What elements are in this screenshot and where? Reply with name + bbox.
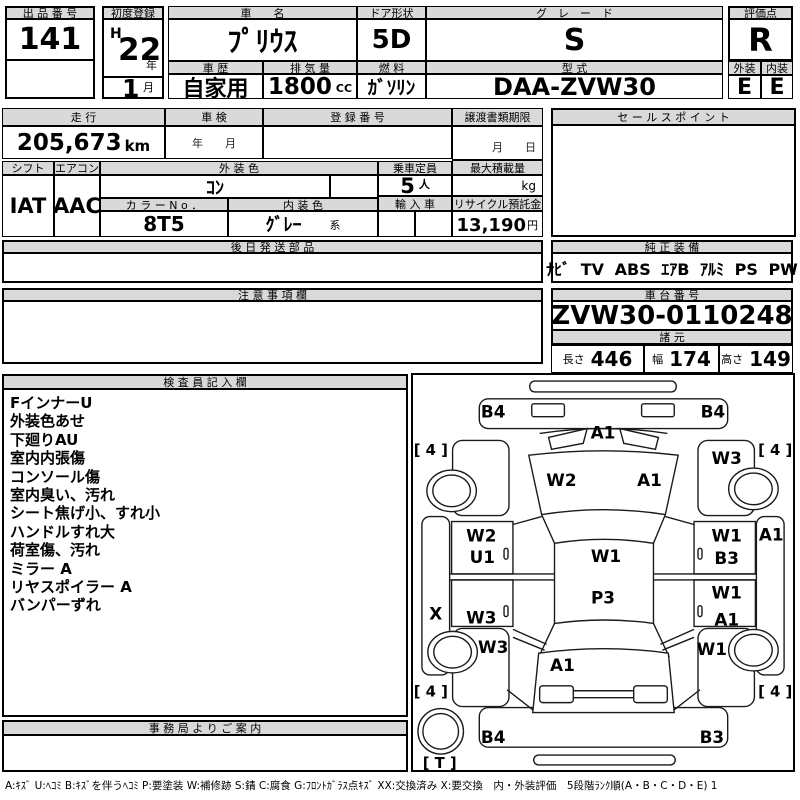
wheel-front-right-inner xyxy=(735,473,773,505)
damage-label-front-bumper-left: B4 xyxy=(481,402,506,422)
length-value: 446 xyxy=(591,347,633,371)
fuel-value: ｶﾞｿﾘﾝ xyxy=(357,74,426,99)
interior-color-suffix: 系 xyxy=(330,217,341,236)
door-handle-rr xyxy=(698,606,702,617)
damage-label-quarter-rl: W3 xyxy=(478,637,508,657)
damage-diagram: B4 B4 A1 [ 4 ] [ 4 ] W3 W2 A1 W2 U1 W1 W… xyxy=(411,373,795,772)
front-quarter-lines xyxy=(513,517,694,525)
lot-number-value: 141 xyxy=(5,18,95,61)
notes-body xyxy=(2,300,543,364)
aircon-value: AAC xyxy=(54,175,100,237)
spare-tire-label: [ T ] xyxy=(423,755,457,770)
rear-bumper-strip xyxy=(534,755,676,765)
grade-header: グ レ ー ド xyxy=(426,6,723,19)
interior-color-value: ｸﾞﾚｰ xyxy=(266,211,302,237)
wheel-front-left-inner xyxy=(433,475,471,507)
door-handle-rl xyxy=(504,606,508,617)
car-damage-map: B4 B4 A1 [ 4 ] [ 4 ] W3 W2 A1 W2 U1 W1 W… xyxy=(413,375,793,770)
damage-labels: B4 B4 A1 [ 4 ] [ 4 ] W3 W2 A1 W2 U1 W1 W… xyxy=(414,402,793,770)
height-label: 高さ xyxy=(721,351,743,367)
transfer-docs-hint: 月 日 xyxy=(452,126,543,160)
car-name-header: 車 名 xyxy=(168,6,357,19)
damage-label-fender-fr: W3 xyxy=(712,448,742,468)
displacement-value-cell: 1800 CC xyxy=(263,74,357,99)
height-value: 149 xyxy=(749,347,791,371)
recycle-deposit-value: 13,190 xyxy=(457,215,526,236)
month-suffix: 月 xyxy=(143,79,154,95)
damage-label-windshield-left: W2 xyxy=(546,470,576,490)
exterior-color-value: ｺﾝ xyxy=(100,175,330,198)
wheel-rear-left-inner xyxy=(434,636,472,668)
color-no-header: カ ラ ー N o ． xyxy=(100,198,228,211)
interior-color-header: 内 装 色 xyxy=(228,198,378,211)
capacity-value: 5 xyxy=(400,174,415,198)
displacement-header: 排 気 量 xyxy=(263,61,357,74)
tread-depth-rear-left: [ 4 ] xyxy=(414,684,448,701)
recycle-deposit-unit: 円 xyxy=(527,217,538,233)
interior-score-value: E xyxy=(761,75,793,99)
exterior-color-header: 外 装 色 xyxy=(100,161,378,175)
oem-equipment-value: ﾅﾋﾞ TV ABS ｴｱB ｱﾙﾐ PS PW xyxy=(551,252,793,283)
door-handle-fr xyxy=(698,548,702,559)
max-load-value-cell: kg xyxy=(452,175,543,196)
width-label: 幅 xyxy=(652,351,663,367)
damage-label-door-rr-1: W1 xyxy=(712,583,742,603)
registration-no-value xyxy=(263,126,452,159)
damage-code-legend: A:ｷｽﾞ U:ﾍｺﾐ B:ｷｽﾞを伴うﾍｺﾐ P:要塗装 W:補修跡 S:錆 … xyxy=(5,778,797,796)
damage-label-door-rl: W3 xyxy=(466,607,496,627)
interior-score-header: 内装 xyxy=(761,61,793,75)
mileage-value: 205,673 xyxy=(17,130,122,156)
import-car-cell-left xyxy=(378,211,415,237)
damage-label-door-fl-2: U1 xyxy=(470,547,495,567)
dimension-width-cell: 幅 174 xyxy=(644,345,719,373)
inspection-hint: 年 月 xyxy=(165,126,263,159)
inspector-note-item: FインナーU xyxy=(10,394,406,412)
damage-label-sill-right: A1 xyxy=(759,524,784,544)
grade-value: S xyxy=(426,19,723,61)
year-suffix: 年 xyxy=(146,57,157,73)
score-value: R xyxy=(728,18,793,61)
inspector-note-item: シート焦げ小、すれ小 xyxy=(10,504,406,522)
office-info-body xyxy=(2,734,408,772)
car-name-value: ﾌﾟﾘｳｽ xyxy=(168,19,357,61)
model-code-value: DAA-ZVW30 xyxy=(426,74,723,99)
door-shape-header: ドア形状 xyxy=(357,6,426,19)
color-no-value: 8T5 xyxy=(100,211,228,237)
capacity-unit: 人 xyxy=(419,176,430,195)
headlight-right xyxy=(642,404,675,417)
width-value: 174 xyxy=(669,347,711,371)
damage-label-quarter-rr: W1 xyxy=(697,639,727,659)
inspector-note-item: 室内臭い、汚れ xyxy=(10,486,406,504)
damage-label-windshield-right: A1 xyxy=(637,470,662,490)
damage-label-door-fr-2: B3 xyxy=(714,548,739,568)
inspection-header: 車 検 xyxy=(165,108,263,126)
mileage-value-cell: 205,673 km xyxy=(2,126,165,159)
sales-point-body xyxy=(551,124,796,237)
chassis-no-value: ZVW30-0110248 xyxy=(551,300,793,331)
b-pillar-band xyxy=(450,574,757,580)
history-value: 自家用 xyxy=(168,74,263,99)
damage-label-door-fr-1: W1 xyxy=(712,525,742,545)
damage-label-roof-rear: P3 xyxy=(591,588,615,608)
dimension-length-cell: 長さ 446 xyxy=(551,345,644,373)
tread-depth-rear-right: [ 4 ] xyxy=(758,684,792,701)
displacement-value: 1800 xyxy=(268,74,332,100)
inspector-note-item: 外装色あせ xyxy=(10,412,406,430)
tread-depth-front-left: [ 4 ] xyxy=(414,442,448,459)
inspector-note-item: 室内内張傷 xyxy=(10,449,406,467)
import-car-cell-right xyxy=(415,211,452,237)
inspector-note-item: バンパーずれ xyxy=(10,596,406,614)
inspector-note-item: リヤスポイラー A xyxy=(10,578,406,596)
first-registration-year-cell: H 22 年 xyxy=(102,18,164,78)
auction-sheet: 出 品 番 号 141 初度登録 H 22 年 1 月 車 名 ドア形状 グ レ… xyxy=(0,0,800,800)
damage-label-sill-left: X xyxy=(429,604,442,624)
inspector-note-item: 荷室傷、汚れ xyxy=(10,541,406,559)
length-label: 長さ xyxy=(563,351,585,367)
door-shape-value: 5D xyxy=(357,19,426,61)
damage-label-cowl: A1 xyxy=(591,422,616,442)
damage-label-door-fl-1: W2 xyxy=(466,525,496,545)
mileage-unit: km xyxy=(125,137,151,158)
exterior-score-header: 外装 xyxy=(728,61,761,75)
rear-bumper xyxy=(479,708,727,748)
registration-month: 1 xyxy=(122,74,139,103)
lot-number-empty-cell xyxy=(5,59,95,99)
recycle-deposit-header: リサイクル預託金 xyxy=(452,196,543,211)
aircon-header: エアコン xyxy=(54,161,100,175)
inspector-note-item: 下廻りAU xyxy=(10,431,406,449)
transfer-docs-header: 譲渡書類期限 xyxy=(452,108,543,126)
recycle-deposit-cell: 13,190 円 xyxy=(452,211,543,237)
shift-value: IAT xyxy=(2,175,54,237)
tread-depth-front-right: [ 4 ] xyxy=(758,442,792,459)
door-handle-fl xyxy=(504,548,508,559)
damage-label-front-bumper-right: B4 xyxy=(701,402,726,422)
mileage-header: 走 行 xyxy=(2,108,165,126)
shift-header: シフト xyxy=(2,161,54,175)
inspector-note-item: ハンドルすれ大 xyxy=(10,523,406,541)
inspector-notes-body: FインナーU 外装色あせ 下廻りAU 室内内張傷 コンソール傷 室内臭い、汚れ … xyxy=(2,388,408,717)
displacement-unit: CC xyxy=(336,82,352,98)
capacity-header: 乗車定員 xyxy=(378,161,452,175)
headlight-left xyxy=(532,404,565,417)
later-parts-body xyxy=(2,252,543,283)
damage-label-rear-bumper-left: B4 xyxy=(481,727,506,747)
spare-tire-inner xyxy=(423,714,459,750)
capacity-value-cell: 5 人 xyxy=(378,175,452,196)
exterior-color-extra-cell xyxy=(330,175,378,198)
interior-color-value-cell: ｸﾞﾚｰ 系 xyxy=(228,211,378,237)
damage-label-door-rr-2: A1 xyxy=(714,609,739,629)
inspector-note-item: ミラー A xyxy=(10,560,406,578)
front-bumper-strip xyxy=(530,381,676,392)
damage-label-hatch: A1 xyxy=(550,655,575,675)
import-car-header: 輸 入 車 xyxy=(378,196,452,211)
max-load-unit: kg xyxy=(521,179,536,193)
registration-no-header: 登 録 番 号 xyxy=(263,108,452,126)
dimensions-header: 諸 元 xyxy=(551,329,793,345)
wheel-rear-right-inner xyxy=(735,634,773,666)
dimension-height-cell: 高さ 149 xyxy=(719,345,793,373)
inspector-note-item: コンソール傷 xyxy=(10,468,406,486)
damage-label-rear-bumper-right: B3 xyxy=(700,727,725,747)
damage-label-roof: W1 xyxy=(591,546,621,566)
first-registration-month-cell: 1 月 xyxy=(102,76,164,99)
exterior-score-value: E xyxy=(728,75,761,99)
max-load-header: 最大積載量 xyxy=(452,160,543,175)
